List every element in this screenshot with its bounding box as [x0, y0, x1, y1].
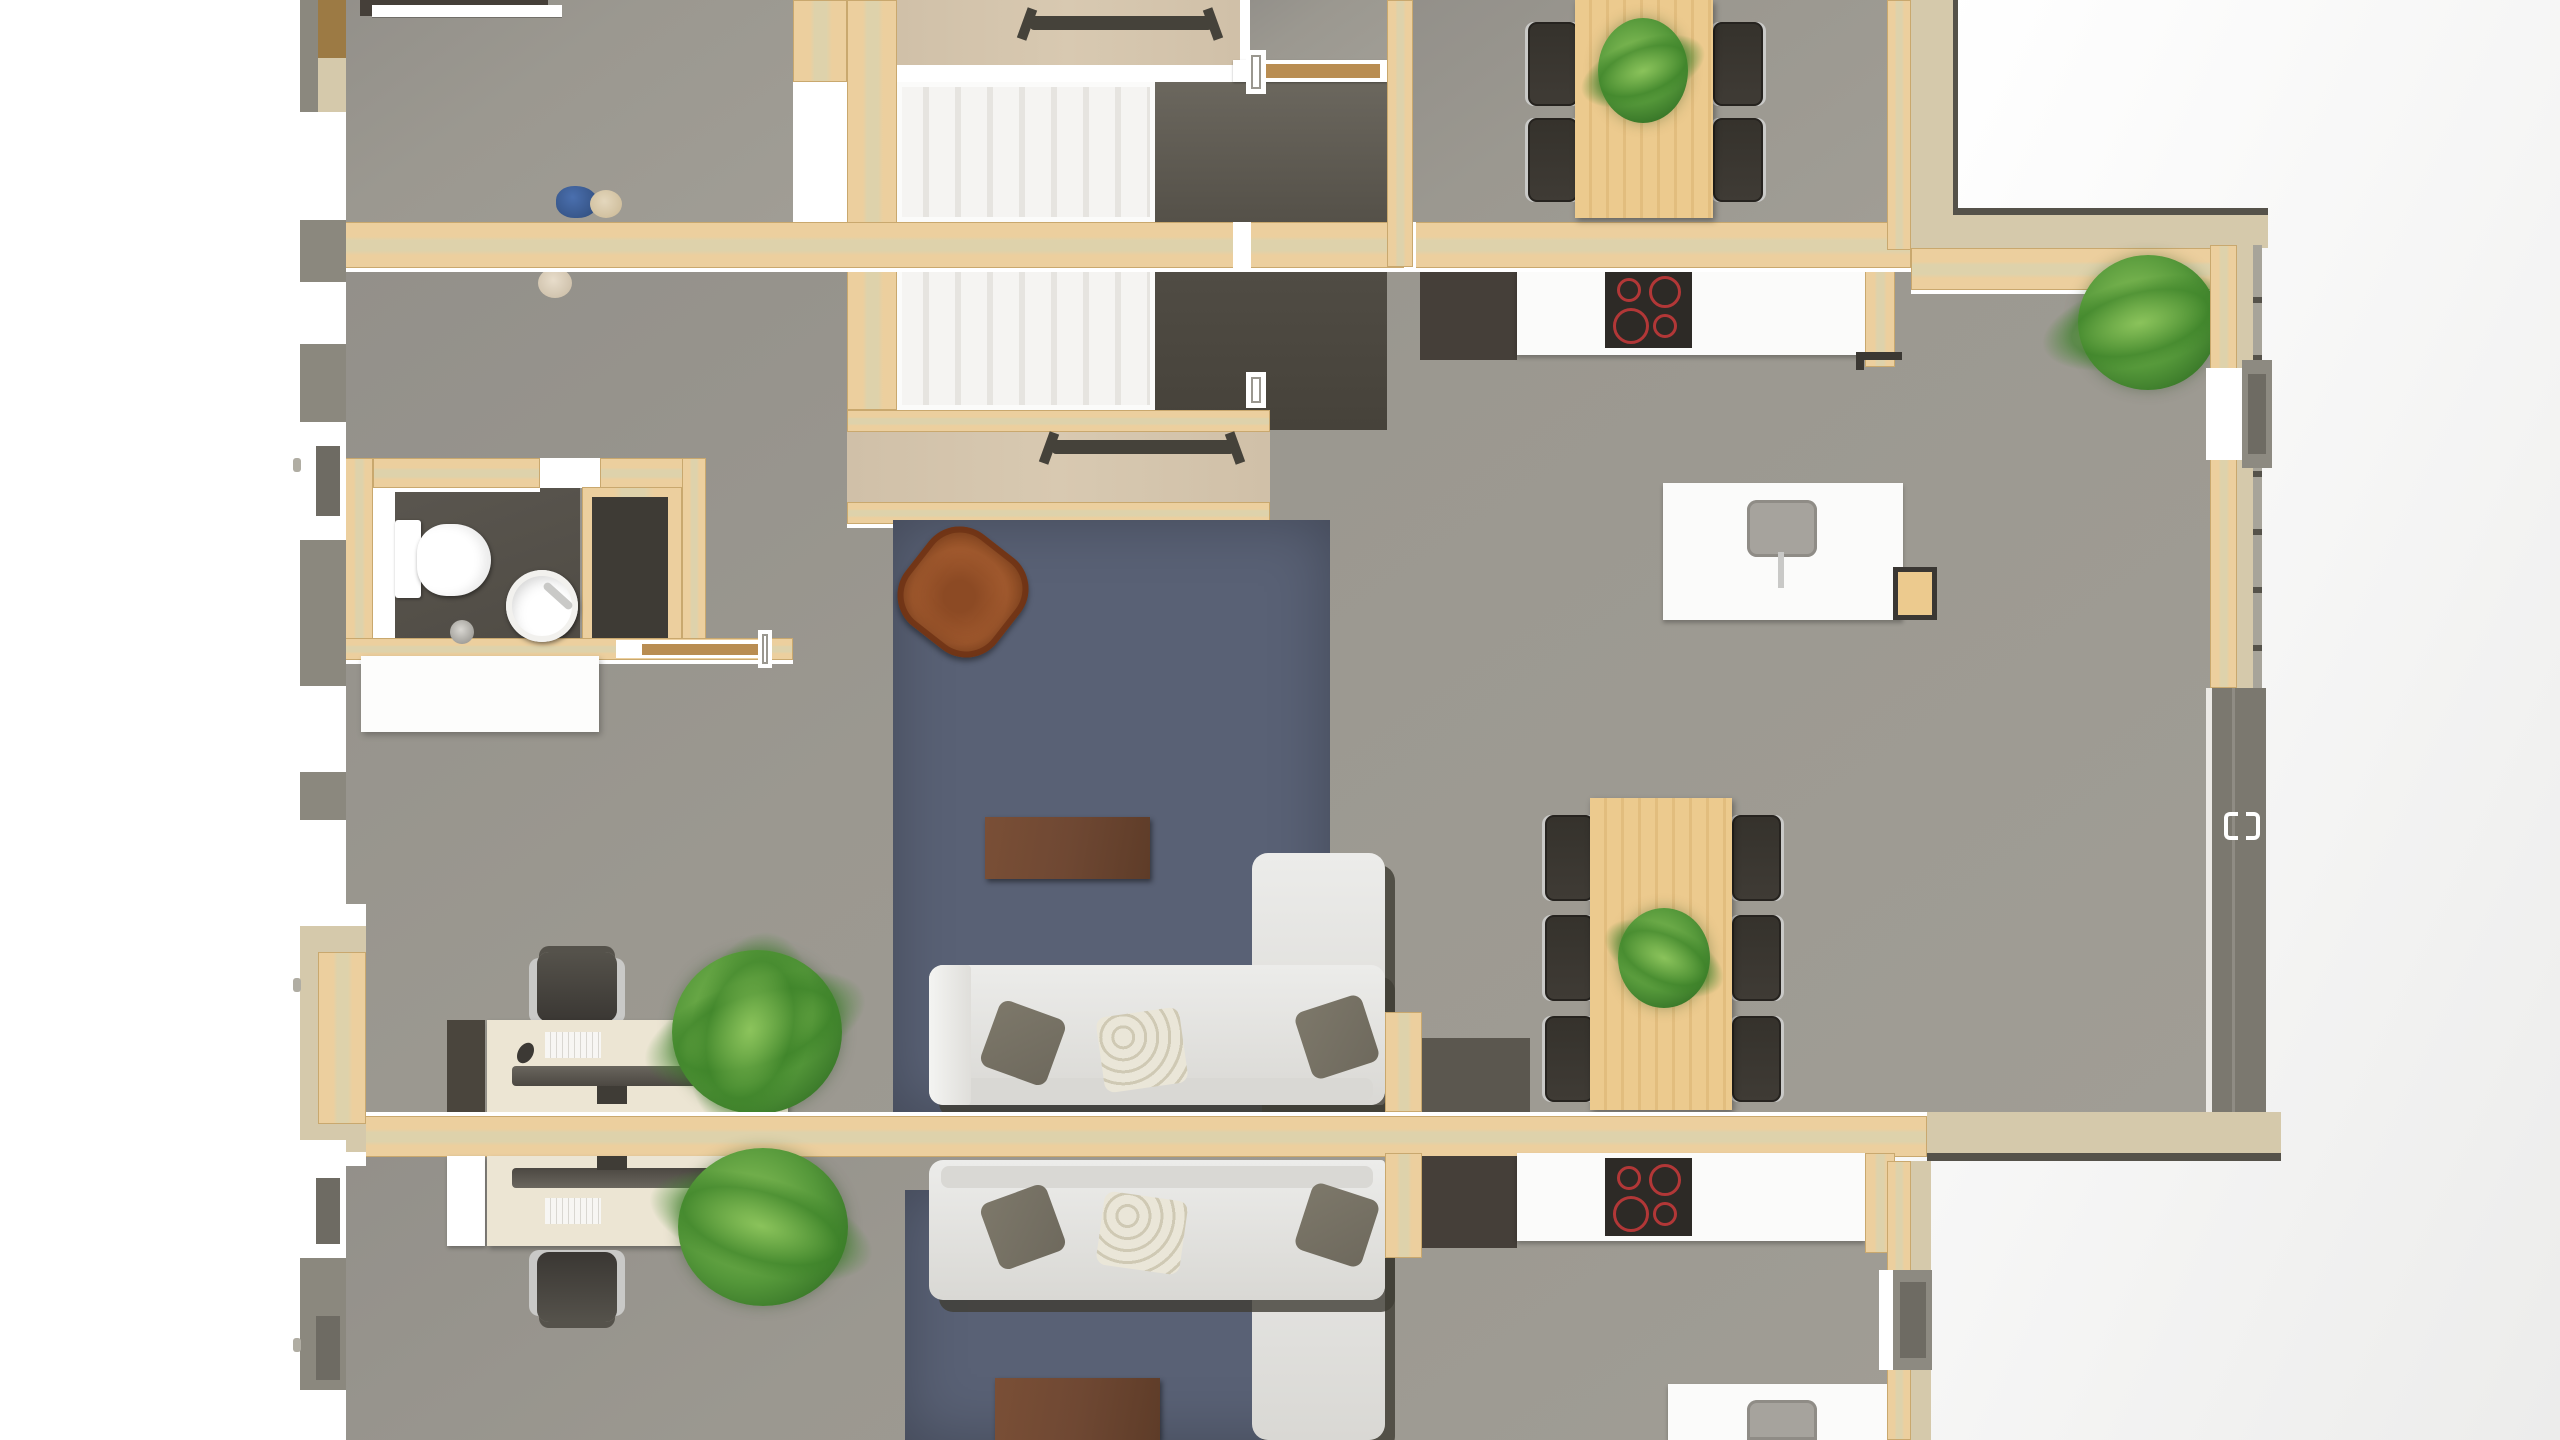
- bathroom-left-pier: [345, 458, 373, 650]
- door-pivot-icon: [1246, 372, 1266, 408]
- vestibule-floor: [1250, 0, 1387, 62]
- door-pivot-icon: [1246, 50, 1266, 94]
- dining-chair: [1713, 118, 1763, 202]
- bar-stool: [1893, 567, 1937, 620]
- bathroom-cabinet: [373, 490, 395, 646]
- sofa-back-cushion-lower: [941, 1166, 1373, 1188]
- entry-closet-dark-upper: [1422, 1038, 1530, 1112]
- bedroom-stair-wall: [793, 0, 847, 82]
- top-right-wall-beige: [1911, 0, 1955, 250]
- burner-ring-icon: [1617, 278, 1641, 302]
- window-handle-icon: [293, 458, 301, 472]
- railing-line: [1927, 1153, 2281, 1161]
- wall-a-main: [300, 222, 1911, 272]
- dining-chair: [1732, 915, 1781, 1001]
- dining-chair: [1545, 1016, 1594, 1102]
- facade-window-recess: [316, 1178, 340, 1244]
- shoe-icon: [590, 190, 622, 218]
- coffee-table-lower: [995, 1378, 1160, 1440]
- sofa-armrest-upper: [929, 965, 971, 1105]
- faucet-icon: [1778, 552, 1784, 588]
- glass-door-divider: [2232, 688, 2235, 1158]
- dining-shaft-wall: [1387, 0, 1413, 267]
- burner-ring-icon: [1653, 314, 1677, 338]
- bathroom-right-wall: [682, 458, 706, 660]
- fridge-lower: [1422, 1156, 1517, 1248]
- left-pier-wood: [318, 952, 366, 1124]
- wall-a-door-gap: [1233, 222, 1251, 268]
- railing-line: [1953, 208, 2268, 215]
- keyboard-icon: [545, 1032, 601, 1058]
- facade-window: [300, 686, 346, 772]
- toilet-bowl: [417, 524, 491, 596]
- dining-chair: [1732, 1016, 1781, 1102]
- dining-chair: [1713, 22, 1763, 106]
- office-cabinet-lower: [447, 1156, 485, 1246]
- hall-sliding-door-panel: [642, 644, 762, 655]
- burner-ring-icon: [1613, 308, 1649, 344]
- top-right-wall-wood: [1887, 0, 1911, 250]
- window-handle-icon: [293, 978, 301, 992]
- island-sink-lower: [1747, 1400, 1817, 1440]
- facade-window: [300, 1390, 346, 1440]
- dining-chair: [1528, 22, 1578, 106]
- fridge-upper: [1420, 267, 1517, 360]
- balcony-parapet-top: [1953, 215, 2268, 248]
- pillow-floral-icon: [1095, 1191, 1188, 1276]
- wall-b-main: [300, 1112, 1927, 1157]
- stair-flight-upper: [897, 82, 1155, 222]
- door-handle-icon: [2246, 812, 2260, 840]
- facade-window-recess: [316, 1316, 340, 1380]
- dining-chair: [1545, 915, 1594, 1001]
- monitor-stand-upper: [597, 1086, 627, 1104]
- toilet-brush-icon: [450, 620, 474, 644]
- burner-ring-icon: [1613, 1196, 1649, 1232]
- glass-door-inner-edge: [2206, 688, 2212, 1158]
- sofa-side-wall-lower: [1385, 1153, 1422, 1258]
- stair-flight-lower: [897, 263, 1155, 410]
- bathroom-wall-top: [373, 458, 540, 492]
- sliding-door-track-top-bedroom: [372, 5, 562, 17]
- bench-top-landing: [1030, 16, 1212, 30]
- burner-ring-icon: [1653, 1202, 1677, 1226]
- slippers-icon: [538, 268, 572, 298]
- bench-bottom-landing: [1052, 440, 1234, 454]
- burner-ring-icon: [1649, 1164, 1681, 1196]
- stair-side-wall: [847, 0, 897, 410]
- office-chair-lower: [537, 1252, 617, 1322]
- shower-closet-interior: [592, 497, 668, 640]
- burner-ring-icon: [1617, 1166, 1641, 1190]
- stair-landing-top: [897, 0, 1240, 65]
- left-facade-wood-panel: [318, 0, 346, 58]
- right-window-recess: [2248, 374, 2266, 454]
- facade-window: [300, 112, 346, 220]
- shaft-sliding-door-panel: [1257, 64, 1380, 78]
- lower-window-recess: [1900, 1282, 1926, 1358]
- facade-window-recess: [316, 446, 340, 516]
- lower-window-frame: [1879, 1270, 1893, 1370]
- facade-window: [300, 282, 346, 344]
- facade-joint: [300, 904, 366, 926]
- floorplan-render: [0, 0, 2560, 1440]
- parapet-bottom-right: [1927, 1112, 2281, 1153]
- right-window-frame: [2206, 368, 2242, 460]
- dining-chair: [1528, 118, 1578, 202]
- keyboard-icon: [545, 1198, 601, 1224]
- pillow-floral-icon: [1095, 1007, 1189, 1094]
- right-wall-wood: [2210, 245, 2237, 688]
- pier-bracket-icon: [1856, 352, 1864, 370]
- burner-ring-icon: [1649, 276, 1681, 308]
- office-cabinet-upper: [447, 1020, 485, 1112]
- office-chair-upper: [537, 952, 617, 1022]
- sofa-side-wall-upper: [1385, 1012, 1422, 1112]
- bathroom-door-gap: [540, 458, 600, 488]
- dining-chair: [1732, 815, 1781, 901]
- monitor-stand-lower: [597, 1156, 627, 1170]
- white-wardrobe: [361, 656, 599, 732]
- dining-chair: [1545, 815, 1594, 901]
- balcony-glass-door: [2206, 688, 2266, 1158]
- coffee-table-upper: [985, 817, 1150, 879]
- window-handle-icon: [293, 1338, 301, 1352]
- island-sink-upper: [1747, 500, 1817, 557]
- railing-line: [1953, 0, 1958, 214]
- door-handle-icon: [2224, 812, 2238, 840]
- door-pivot-icon: [758, 630, 772, 668]
